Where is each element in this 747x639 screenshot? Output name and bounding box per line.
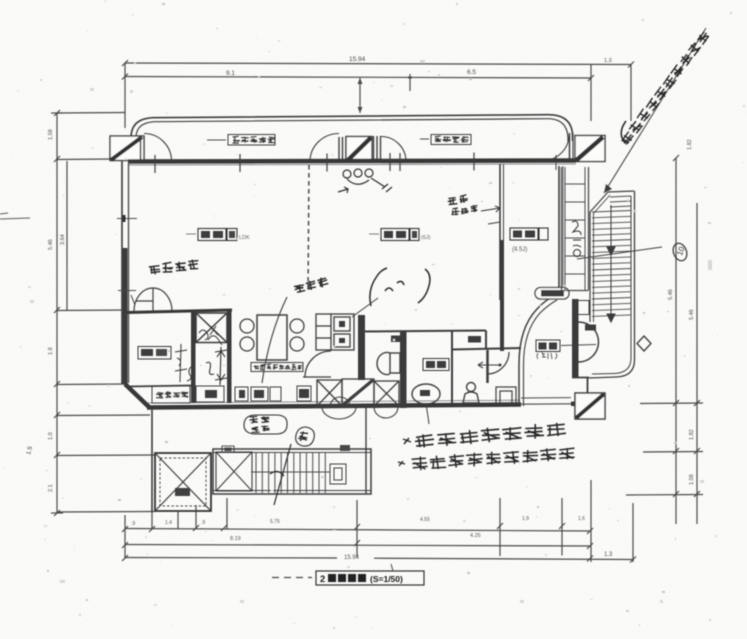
svg-text:2: 2 [320,574,325,585]
svg-text:3.64: 3.64 [60,234,66,245]
svg-text:9.1: 9.1 [226,70,235,77]
svg-text:1.58: 1.58 [48,129,54,140]
svg-text:1.8: 1.8 [48,347,54,355]
svg-text:5.46: 5.46 [689,309,695,320]
svg-text:8.19: 8.19 [230,536,241,542]
svg-text:(S=1/50): (S=1/50) [370,574,403,584]
svg-text:1.3: 1.3 [604,552,613,558]
svg-text:.9: .9 [131,521,135,527]
svg-text:1.82: 1.82 [687,139,693,150]
svg-text:2.1: 2.1 [48,484,54,492]
svg-text:LDK: LDK [239,235,250,241]
svg-text:15.94: 15.94 [349,56,366,63]
svg-text:.9: .9 [201,520,205,526]
svg-text:1.6: 1.6 [578,516,585,522]
svg-text:1.4: 1.4 [165,520,172,526]
svg-text:1.3: 1.3 [604,58,612,64]
svg-text:1.82: 1.82 [689,429,695,440]
svg-text:(6J): (6J) [421,235,431,241]
svg-text:1.9: 1.9 [522,516,529,522]
svg-text:1.0: 1.0 [48,432,54,440]
svg-text:5.46: 5.46 [48,239,54,250]
svg-text:4.25: 4.25 [470,533,481,539]
svg-text:15.94: 15.94 [344,555,360,561]
svg-text:1.58: 1.58 [689,474,695,485]
svg-text:5.46: 5.46 [668,289,674,300]
svg-text:5.75: 5.75 [270,519,280,525]
svg-text:6.5: 6.5 [467,69,476,76]
svg-text:4.55: 4.55 [420,517,430,523]
